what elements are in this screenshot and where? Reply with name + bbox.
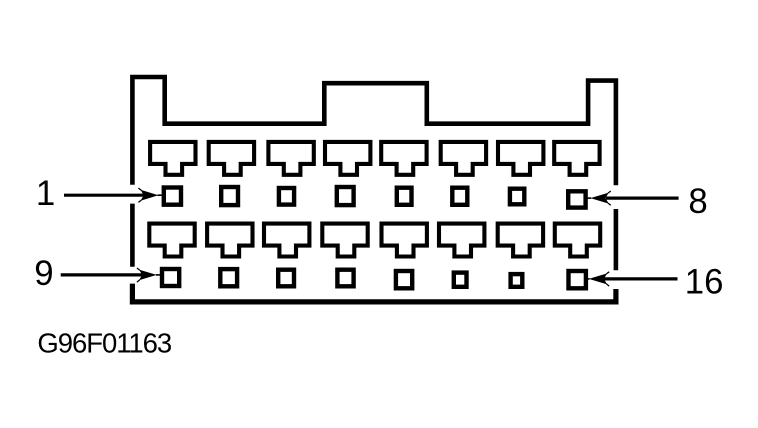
svg-text:1: 1 xyxy=(36,174,55,213)
svg-text:G96F01163: G96F01163 xyxy=(37,328,172,359)
svg-text:9: 9 xyxy=(34,254,53,293)
svg-text:16: 16 xyxy=(685,263,724,302)
svg-text:8: 8 xyxy=(688,182,707,221)
